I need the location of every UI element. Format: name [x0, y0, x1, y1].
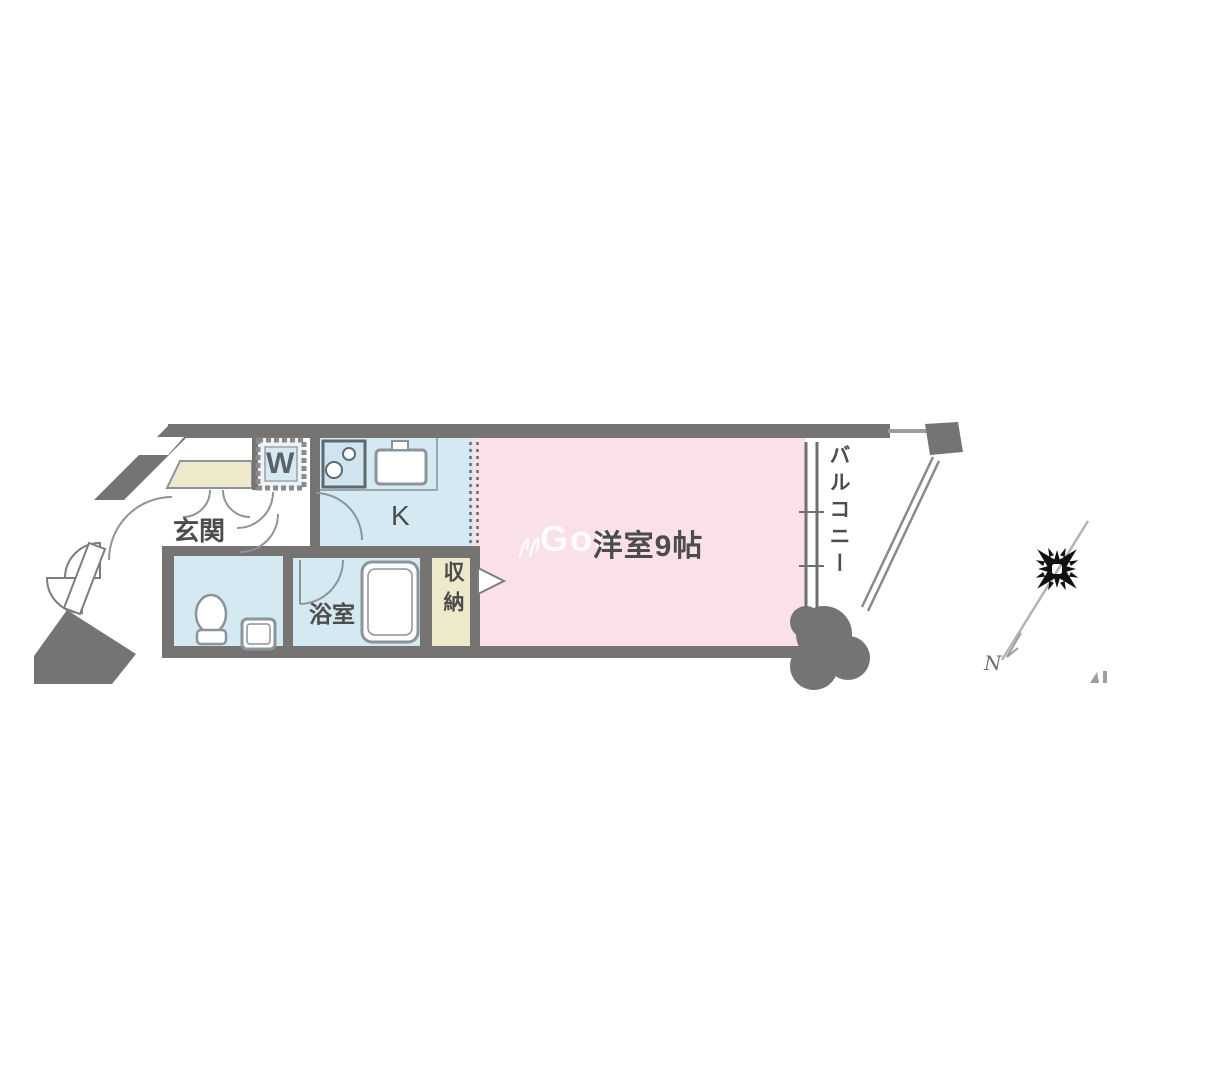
balcony-top-line — [888, 429, 928, 433]
entrance-door — [47, 543, 105, 614]
artifact-triangle — [1090, 672, 1099, 683]
top-wall — [168, 424, 890, 438]
toilet-left-wall — [162, 548, 174, 658]
room-label-bathroom: 浴室 — [309, 595, 355, 629]
room-label-kitchen: K — [391, 500, 410, 532]
kitchen-faucet — [392, 441, 408, 450]
toilet-tank — [197, 630, 226, 644]
room-label-genkan: 玄関 — [173, 511, 225, 548]
shoe-cabinet-door-swing-right — [223, 490, 250, 517]
bathtub — [362, 562, 418, 642]
compass-blade-nw — [1033, 545, 1056, 568]
kitchen-sink — [376, 450, 426, 484]
stove-burner-small — [343, 448, 355, 460]
stove-burner-large — [326, 462, 342, 478]
room-label-balcony: バルコニー — [823, 444, 853, 579]
railing-line-1 — [862, 457, 933, 607]
corner-artifact-mark — [1090, 671, 1107, 683]
floorplan-page: Goo 玄関 W K 洋室9帖 浴室 収納 バルコニー N — [0, 0, 1209, 1086]
balcony-railing — [862, 457, 939, 611]
toilet-bath-wall — [283, 556, 293, 648]
compass-point-s — [1053, 574, 1061, 588]
room-label-storage: 収納 — [437, 561, 467, 621]
railing-line-2 — [868, 461, 939, 611]
storage-right-wall — [470, 548, 480, 648]
compass-point-e — [1062, 565, 1076, 573]
compass-blade-se — [1057, 569, 1080, 592]
compass-point-w — [1038, 565, 1052, 573]
pillar-lobe-3 — [790, 642, 838, 690]
shoe-cabinet — [167, 461, 252, 488]
entry-wedge-wall — [34, 610, 136, 684]
compass-north-label: N — [984, 651, 1002, 675]
hall-closet-door-swing-1 — [237, 492, 273, 528]
balcony-railing-block — [925, 422, 963, 455]
compass — [1002, 521, 1088, 660]
bath-storage-wall — [420, 556, 432, 648]
compass-arrowhead — [1007, 633, 1021, 657]
corner-pillar — [790, 606, 870, 690]
room-label-washer: W — [266, 447, 294, 481]
compass-needle-line — [1002, 521, 1088, 660]
toilet-bowl — [196, 595, 226, 633]
artifact-bar — [1103, 671, 1107, 683]
compass-point-n — [1053, 550, 1061, 564]
pillar-lobe-4 — [790, 606, 822, 638]
room-label-main-room: 洋室9帖 — [556, 521, 740, 565]
